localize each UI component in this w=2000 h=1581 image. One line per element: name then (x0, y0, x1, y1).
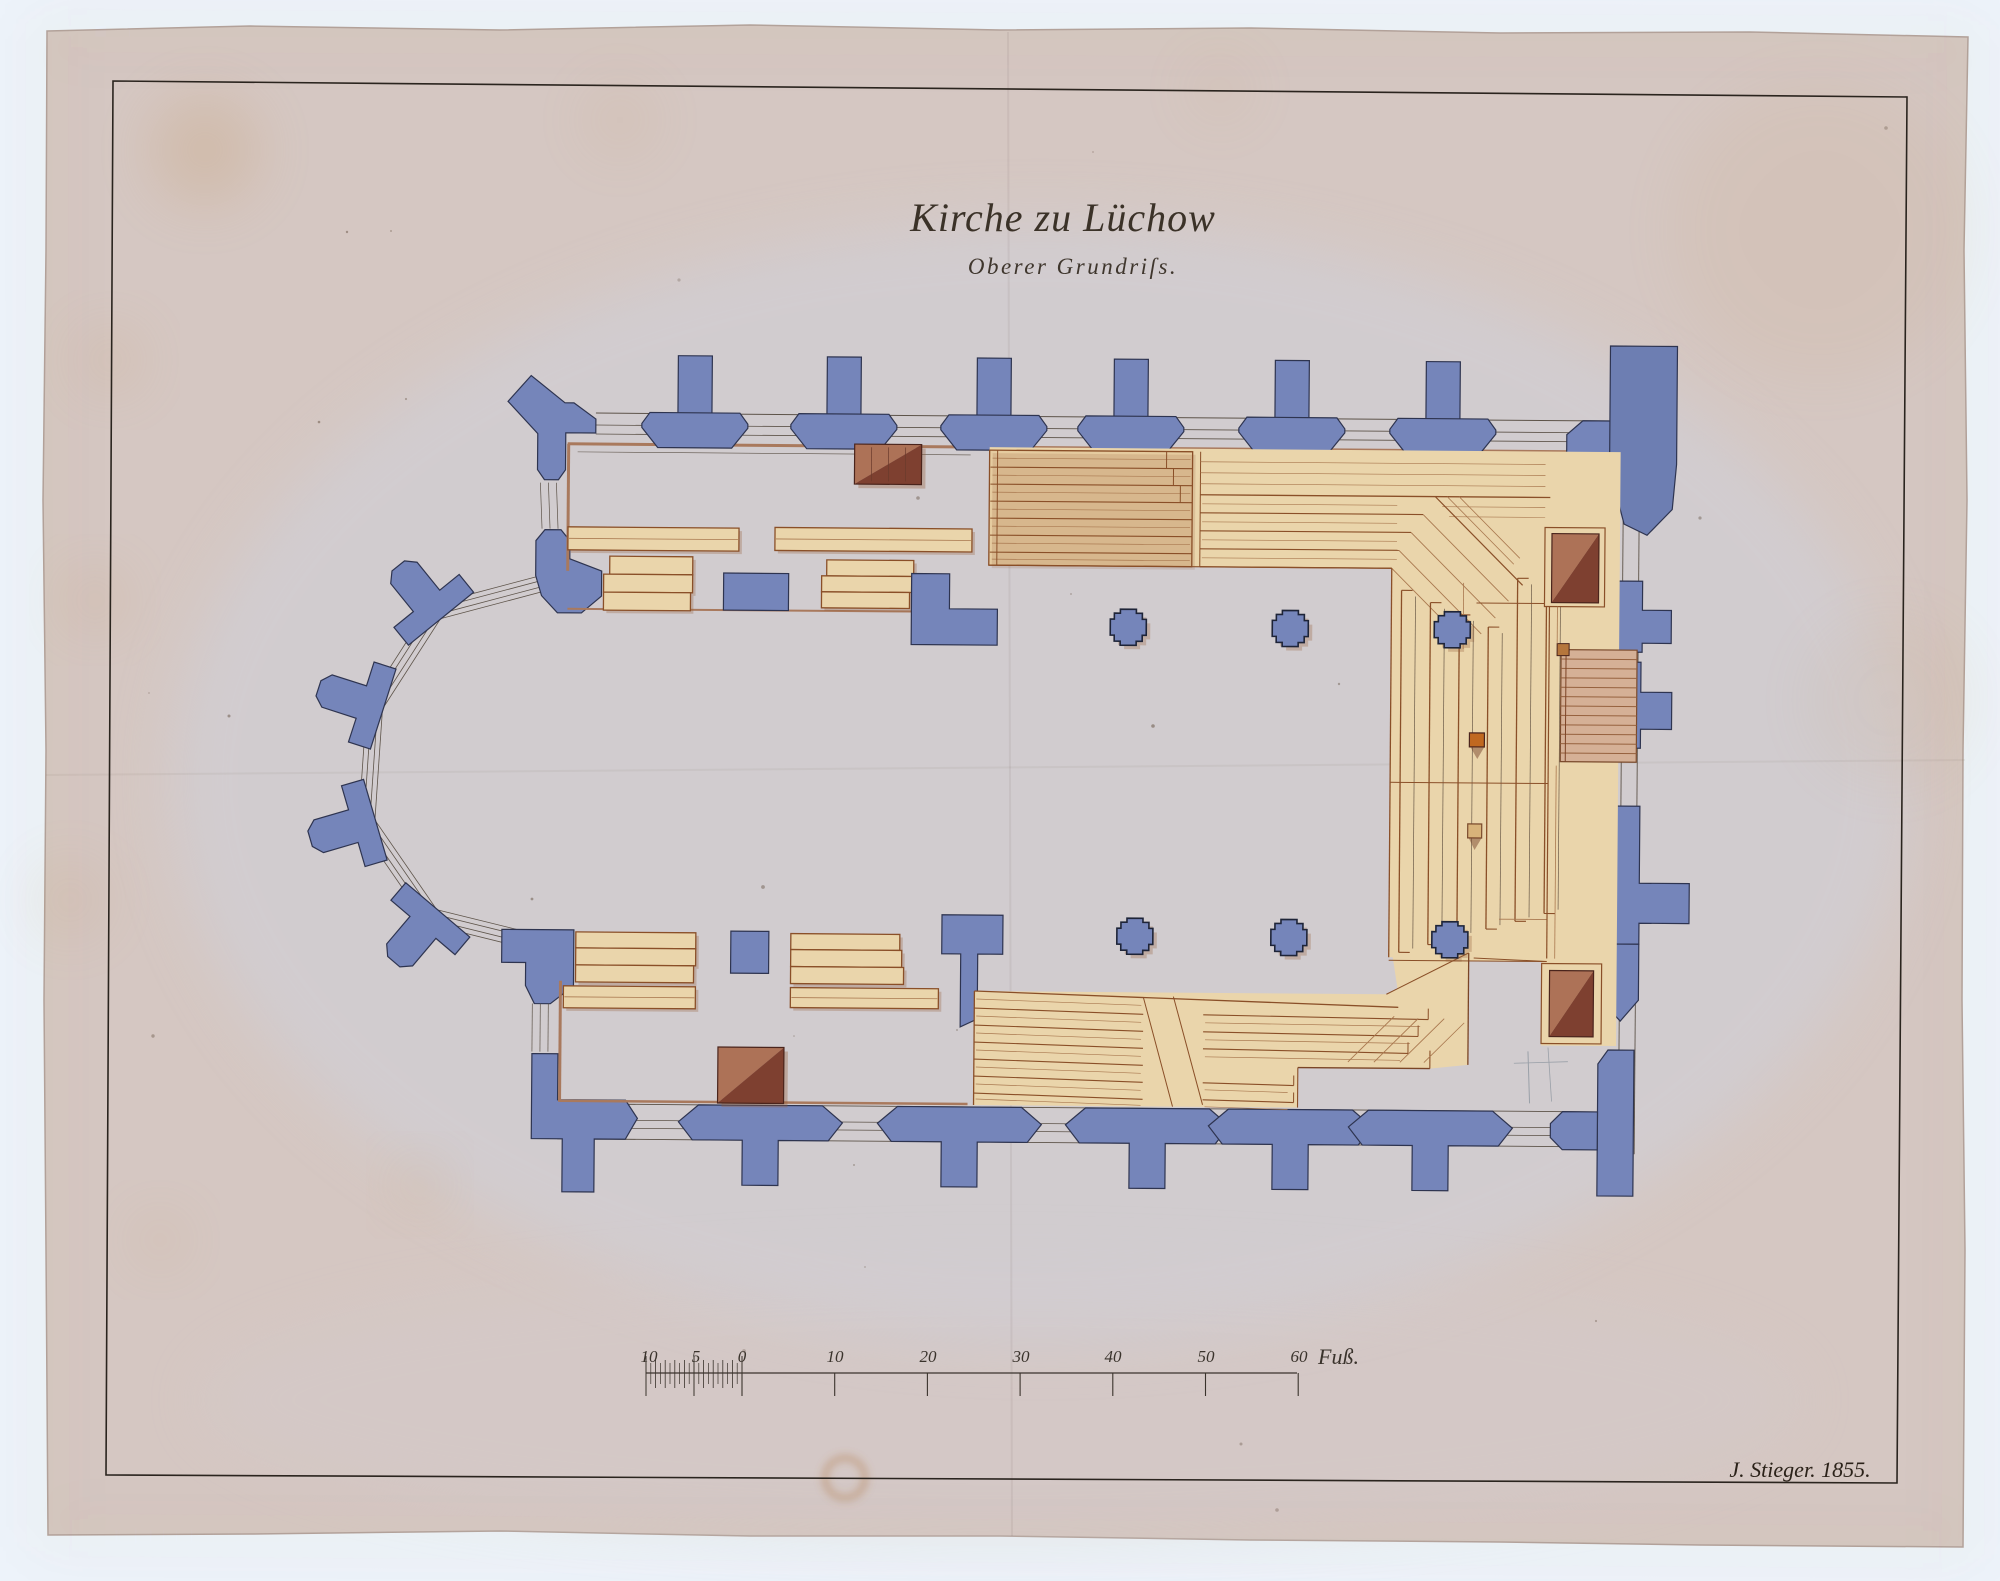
svg-text:30: 30 (1012, 1347, 1031, 1366)
svg-text:0: 0 (738, 1347, 747, 1366)
svg-text:50: 50 (1198, 1347, 1216, 1366)
svg-text:10: 10 (641, 1347, 659, 1366)
svg-text:Oberer Grundriſs.: Oberer Grundriſs. (968, 254, 1178, 279)
svg-text:20: 20 (920, 1347, 938, 1366)
svg-text:5: 5 (692, 1347, 701, 1366)
svg-text:40: 40 (1105, 1347, 1123, 1366)
svg-text:Fuß.: Fuß. (1317, 1344, 1359, 1369)
svg-text:60: 60 (1291, 1347, 1309, 1366)
svg-text:J. Stieger. 1855.: J. Stieger. 1855. (1729, 1457, 1870, 1482)
svg-text:10: 10 (827, 1347, 845, 1366)
svg-text:Kirche zu Lüchow: Kirche zu Lüchow (909, 195, 1216, 240)
